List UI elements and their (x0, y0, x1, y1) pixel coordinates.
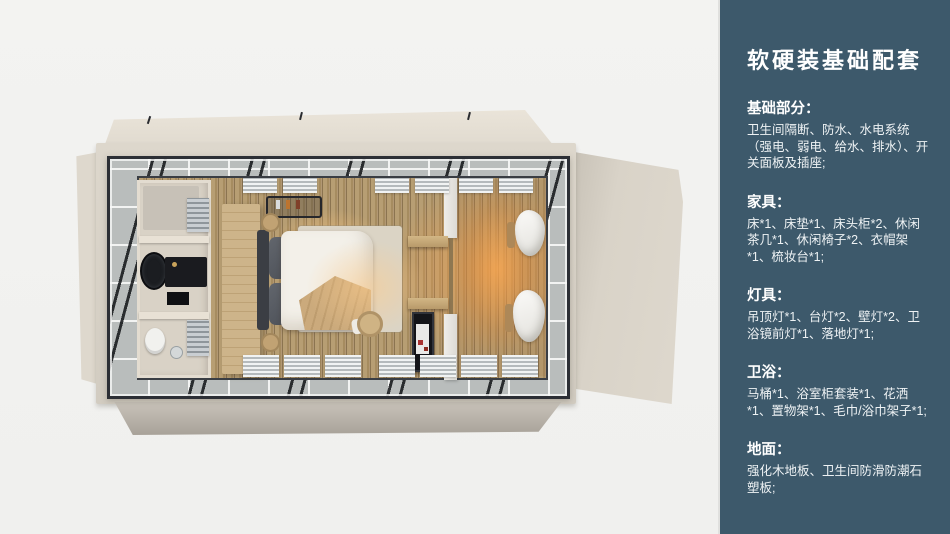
bathroom-louver-panel (187, 198, 209, 232)
ceiling-louver-panel (379, 355, 415, 377)
ceiling-louver-panel (499, 178, 533, 193)
ceiling-louver-panel (459, 178, 493, 193)
chair-armrest (505, 304, 513, 332)
ceiling-louver-panel (243, 355, 279, 377)
package-sidebar: 软硬装基础配套 基础部分： 卫生间隔断、防水、水电系统（强电、弱电、给水、排水）… (718, 0, 950, 534)
slide-page: { "page": { "background": "#f2f2f0" }, "… (0, 0, 950, 534)
chair-armrest (507, 222, 515, 248)
bedside-basket (261, 333, 280, 352)
bottle (296, 200, 300, 209)
section-flooring-body: 强化木地板、卫生间防滑防潮石塑板; (747, 463, 929, 496)
section-basics: 基础部分： 卫生间隔断、防水、水电系统（强电、弱电、给水、排水）、开关面板及插座… (747, 100, 936, 172)
faucet (172, 262, 177, 267)
partition-post (449, 238, 453, 314)
section-basics-heading: 基础部分： (747, 100, 936, 119)
section-sanitary: 卫浴： 马桶*1、浴室柜套装*1、花洒*1、置物架*1、毛巾/浴巾架子*1; (747, 364, 936, 419)
section-lighting-heading: 灯具： (747, 287, 936, 306)
towel-shelf (167, 292, 189, 305)
sidebar-title: 软硬装基础配套 (747, 46, 936, 76)
bed-headboard (257, 230, 269, 330)
toilet (145, 328, 165, 354)
bedside-basket (261, 213, 280, 232)
ceiling-louver-panel (375, 178, 409, 193)
ceiling-louver-panel (420, 355, 456, 377)
ceiling-louver-panel (284, 355, 320, 377)
ceiling-louver-panel (283, 178, 317, 193)
bathroom-vanity-sink (165, 257, 207, 287)
section-sanitary-heading: 卫浴： (747, 364, 936, 383)
section-basics-body: 卫生间隔断、防水、水电系统（强电、弱电、给水、排水）、开关面板及插座; (747, 122, 929, 172)
round-side-table (357, 311, 383, 337)
section-furniture-heading: 家具： (747, 194, 936, 213)
section-flooring-heading: 地面： (747, 441, 936, 460)
bottle (286, 200, 290, 209)
wall-shelf (408, 236, 448, 247)
vanity-mirror (140, 252, 168, 290)
section-furniture-body: 床*1、床垫*1、床头柜*2、休闲茶几*1、休闲椅子*2、衣帽架*1、梳妆台*1… (747, 216, 929, 266)
ceiling-louver-panel (502, 355, 538, 377)
bathroom-louver-panel (187, 320, 209, 356)
ceiling-louver-panel (461, 355, 497, 377)
section-sanitary-body: 马桶*1、浴室柜套装*1、花洒*1、置物架*1、毛巾/浴巾架子*1; (747, 386, 929, 419)
bathroom-divider (139, 312, 209, 319)
minibar-item (418, 340, 423, 345)
room-render-area (0, 0, 718, 534)
ceiling-louver-panel (243, 178, 277, 193)
section-lighting: 灯具： 吊顶灯*1、台灯*2、壁灯*2、卫浴镜前灯*1、落地灯*1; (747, 287, 936, 342)
section-flooring: 地面： 强化木地板、卫生间防滑防潮石塑板; (747, 441, 936, 496)
deck-bottom-flap (110, 402, 566, 435)
ceiling-louver-panel (325, 355, 361, 377)
wall-shelf (408, 298, 448, 309)
warm-light-zone (458, 180, 546, 376)
wardrobe-panel (222, 204, 260, 374)
bottle (276, 200, 280, 209)
bathroom-divider (139, 236, 209, 243)
section-furniture: 家具： 床*1、床垫*1、床头柜*2、休闲茶几*1、休闲椅子*2、衣帽架*1、梳… (747, 194, 936, 266)
minibar-item (424, 347, 428, 351)
shower-head (170, 346, 183, 359)
ceiling-louver-panel (415, 178, 449, 193)
deck-right-flap (570, 138, 683, 404)
section-lighting-body: 吊顶灯*1、台灯*2、壁灯*2、卫浴镜前灯*1、落地灯*1; (747, 309, 929, 342)
